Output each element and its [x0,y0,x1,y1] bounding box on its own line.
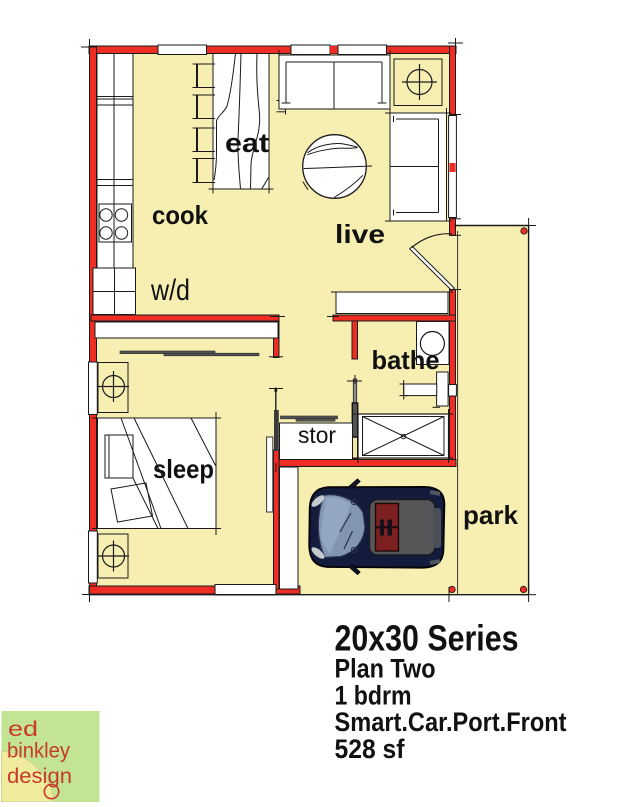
svg-text:stor: stor [298,422,336,448]
svg-text:cook: cook [152,200,208,230]
svg-text:1 bdrm: 1 bdrm [335,681,412,711]
svg-text:Plan Two: Plan Two [335,654,436,684]
svg-text:Smart.Car.Port.Front: Smart.Car.Port.Front [335,707,567,737]
svg-text:eat: eat [225,128,269,158]
svg-text:park: park [463,500,519,530]
svg-text:20x30 Series: 20x30 Series [335,618,519,659]
svg-text:w/d: w/d [150,274,190,307]
svg-text:live: live [335,219,385,249]
svg-text:528 sf: 528 sf [335,734,406,764]
svg-text:binkley: binkley [7,740,70,763]
svg-text:design: design [7,765,72,788]
svg-text:sleep: sleep [153,454,214,484]
svg-text:ed: ed [8,718,38,741]
svg-text:bathe: bathe [372,345,440,375]
